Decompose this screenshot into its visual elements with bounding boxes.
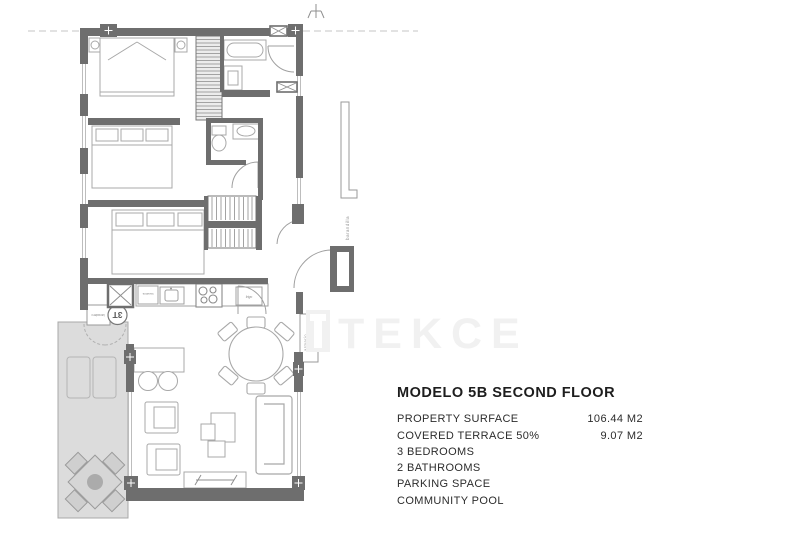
spec-label: COVERED TERRACE 50% — [397, 428, 540, 444]
stairs — [208, 196, 256, 248]
spec-row: PARKING SPACE — [397, 476, 643, 492]
bathroom-2 — [212, 124, 259, 151]
spec-value: 9.07 M2 — [600, 428, 643, 444]
master-bedroom — [89, 38, 187, 96]
kitchen: lavadora frigo — [108, 284, 268, 307]
watermark-text: TEKCE — [338, 310, 529, 358]
spec-row: PROPERTY SURFACE 106.44 M2 — [397, 411, 643, 427]
coffee-table — [201, 413, 235, 457]
utility-label: lavadero — [91, 313, 104, 317]
washer-label: lavadora — [142, 292, 153, 296]
dining-table — [217, 317, 295, 394]
double-bed — [100, 38, 174, 96]
watermark: TEKCE — [306, 310, 529, 358]
spec-row: COMMUNITY POOL — [397, 493, 643, 509]
shaft-box — [108, 284, 133, 307]
bathroom-1 — [224, 40, 266, 90]
plan-title: MODELO 5B SECOND FLOOR — [397, 386, 643, 401]
unit-marker-label: 3T — [112, 310, 123, 320]
armchairs — [145, 402, 180, 475]
bedroom-2 — [92, 126, 172, 188]
spec-row: 2 BATHROOMS — [397, 460, 643, 476]
kitchen-island — [134, 348, 184, 391]
fridge-label: frigo — [246, 295, 253, 299]
railing: barandilla — [341, 102, 357, 240]
vanity-sink — [224, 66, 242, 90]
sofa — [256, 396, 292, 474]
bedroom-3 — [112, 210, 204, 274]
spec-label: COMMUNITY POOL — [397, 493, 504, 509]
spec-label: PROPERTY SURFACE — [397, 411, 519, 427]
walk-in-wardrobe — [196, 36, 222, 120]
survey-marker-icon — [308, 4, 324, 18]
toilet — [212, 126, 226, 135]
spec-row: 3 BEDROOMS — [397, 444, 643, 460]
spec-value: 106.44 M2 — [587, 411, 643, 427]
spec-label: 2 BATHROOMS — [397, 460, 481, 476]
info-block: MODELO 5B SECOND FLOOR PROPERTY SURFACE … — [397, 386, 643, 509]
spec-label: 3 BEDROOMS — [397, 444, 474, 460]
spec-label: PARKING SPACE — [397, 476, 490, 492]
spec-row: COVERED TERRACE 50% 9.07 M2 — [397, 428, 643, 444]
tv-unit — [184, 472, 246, 488]
kitchen-sink — [160, 287, 184, 304]
cooktop — [196, 284, 222, 307]
railing-label: barandilla — [345, 216, 350, 240]
entry-closet-slot — [337, 252, 349, 286]
